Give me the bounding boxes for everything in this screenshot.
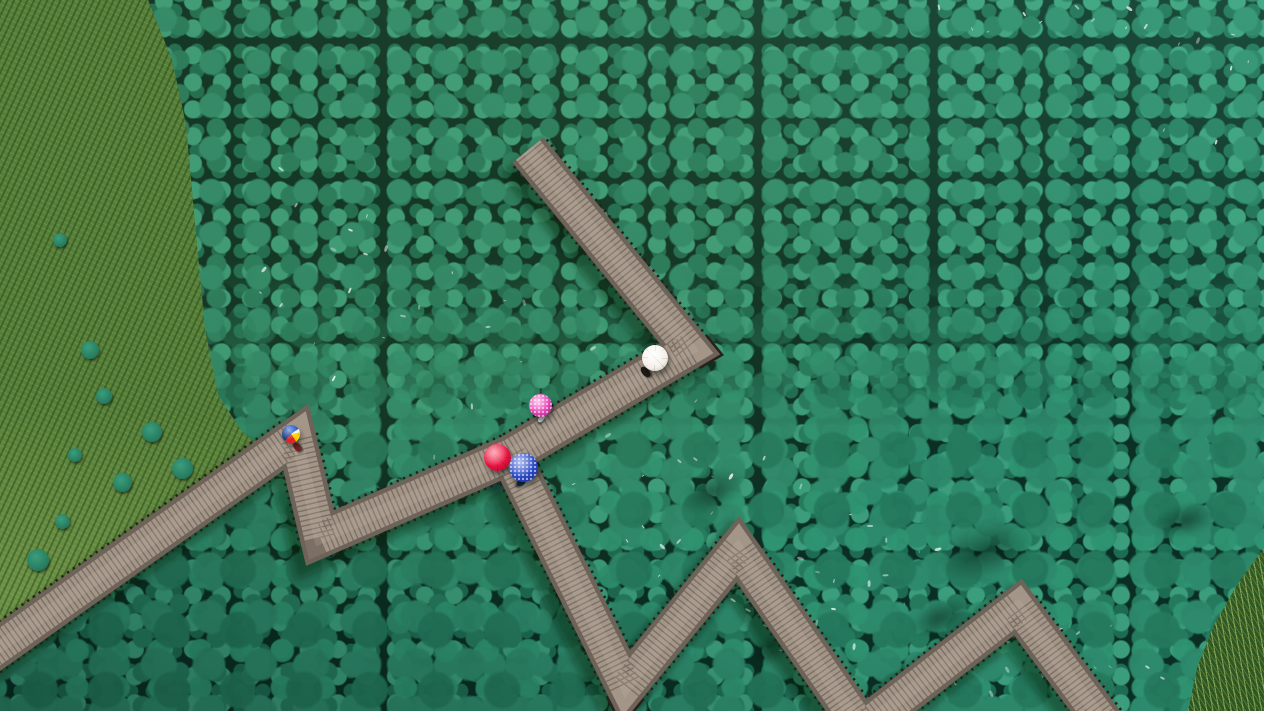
umbrella-texture <box>484 444 511 471</box>
umbrella-texture <box>529 394 552 417</box>
boardwalk <box>0 0 1264 711</box>
blue-umbrella <box>509 453 538 482</box>
white-umbrella <box>642 345 668 371</box>
aerial-lotus-pond-photo <box>0 0 1264 711</box>
pink-umbrella <box>529 394 552 417</box>
umbrella-texture <box>642 345 668 371</box>
umbrella-texture <box>282 425 300 443</box>
rainbow-umbrella <box>282 425 300 443</box>
umbrella-texture <box>509 453 538 482</box>
red-umbrella <box>484 444 511 471</box>
